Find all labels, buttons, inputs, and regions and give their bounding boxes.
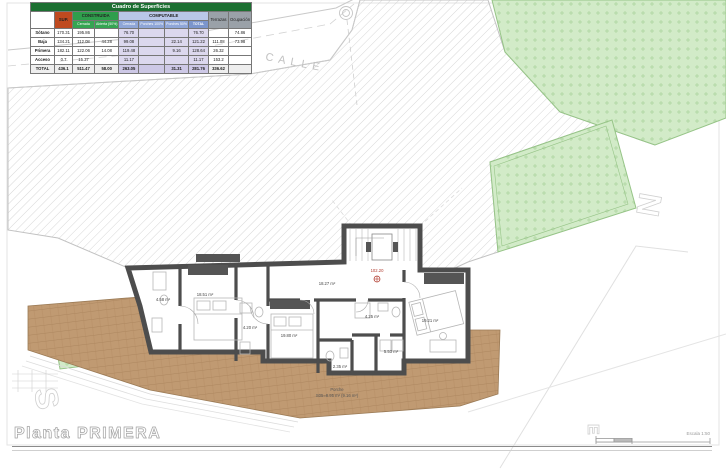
cell [95,29,119,38]
cell [139,38,165,47]
cell: 511.47 [73,65,95,74]
row-label: Sótano [31,29,55,38]
table-corner-cell [31,12,55,29]
header-construida: CONSTRUIDA [73,12,119,21]
row-label: Baja [31,38,55,47]
manhole-icon [340,7,353,20]
table-total-row: TOTAL 436.1 511.47 58.00 263.05 31.31 28… [31,65,252,74]
cell [165,56,189,65]
cell: 111.08 [209,38,229,47]
table-row: Sótano 170.31 195.86 76.70 76.70 74.86 [31,29,252,38]
parcel-boundary-line [500,246,688,468]
cell: 134.21 [55,38,73,47]
table-row: Acceso 0.7 15.37 11.17 11.17 153.2 [31,56,252,65]
cell: 436.1 [55,65,73,74]
room-label-bathroom-2: 4.20 m² [243,325,258,330]
room-label-bedroom-3: 19.21 m² [422,318,439,323]
room-label-wc: 2.35 m² [333,364,348,369]
cell: 153.2 [209,56,229,65]
cell: 182.11 [55,47,73,56]
cell: 58.00 [95,65,119,74]
cell [139,47,165,56]
cell [139,65,165,74]
cell: 9.16 [165,47,189,56]
cell: 112.08 [73,38,95,47]
row-label: Acceso [31,56,55,65]
surfaces-table: Cuadro de Superficies SUP. CONSTRUIDA CO… [30,2,252,74]
cell [139,29,165,38]
cell: 11.17 [119,56,139,65]
subheader-cerrada-computable: Cerrada [119,21,139,29]
cell: 26.32 [209,47,229,56]
level-marker-value: 102.20 [371,268,384,273]
subheader-cerrada-construida: Cerrada [73,21,95,29]
cell: 11.17 [189,56,209,65]
porch-label: Porche [330,387,344,392]
cell [229,56,252,65]
cell: 74.86 [229,29,252,38]
table-title: Cuadro de Superficies [31,3,252,12]
cell [95,56,119,65]
cell: 76.70 [189,29,209,38]
room-label-laundry: 5.53 m² [384,349,399,354]
parcel-boundary-line-2 [468,334,726,412]
cell: 99.08 [119,38,139,47]
header-ocupacion: Ocupación [229,12,252,29]
subheader-porches-50: Porches 50% [165,21,189,29]
room-label-bathroom-1: 4.58 m² [156,297,171,302]
cell [229,47,252,56]
subheader-porches-100: Porches 100% [139,21,165,29]
compass-north-label: N [629,190,668,219]
scale-label: Escala 1:50 [686,431,710,436]
cell: 170.31 [55,29,73,38]
surfaces-table-grid: Cuadro de Superficies SUP. CONSTRUIDA CO… [30,2,252,74]
header-computable: COMPUTABLE [119,12,209,21]
drawing-sheet: 4.58 m² 18.51 m² 4.20 m² 19.80 m² 18.27 … [0,0,726,470]
title-block-rule [12,446,712,451]
room-label-bedroom-1: 18.51 m² [197,292,214,297]
room-label-bedroom-2: 19.80 m² [281,333,298,338]
header-sup: SUP. [55,12,73,29]
cell: 263.05 [119,65,139,74]
compass-east-label: E [584,424,601,435]
cell [165,29,189,38]
compass-south-label: S [27,385,66,412]
row-label: Primera [31,47,55,56]
cell: 15.37 [73,56,95,65]
table-row: Baja 134.21 112.08 44.28 99.08 22.14 121… [31,38,252,47]
cell: 76.70 [119,29,139,38]
cell: 128.64 [189,47,209,56]
header-terrazas: Terrazas [209,12,229,29]
porch-area-label: S05=8.95 m² (9.16 m²) [316,393,359,398]
cell: 14.08 [95,47,119,56]
cell [209,29,229,38]
plan-title: Planta PRIMERA [14,425,161,443]
cell: 336.62 [209,65,229,74]
cell: 121.22 [189,38,209,47]
room-label-bathroom-3: 4.25 m² [365,314,380,319]
cell [229,65,252,74]
table-row: Primera 182.11 122.06 14.08 119.48 9.16 … [31,47,252,56]
cell: 119.48 [119,47,139,56]
scale-bar [596,436,710,444]
cell: 122.06 [73,47,95,56]
room-label-hall: 18.27 m² [319,281,336,286]
cell: 22.14 [165,38,189,47]
cell [139,56,165,65]
cell: 195.86 [73,29,95,38]
cell: 0.7 [55,56,73,65]
subheader-abierta: Abierta (50%) [95,21,119,29]
cell: 31.31 [165,65,189,74]
subheader-total: TOTAL [189,21,209,29]
cell: 281.76 [189,65,209,74]
row-label: TOTAL [31,65,55,74]
cell: 44.28 [95,38,119,47]
cell: 73.98 [229,38,252,47]
